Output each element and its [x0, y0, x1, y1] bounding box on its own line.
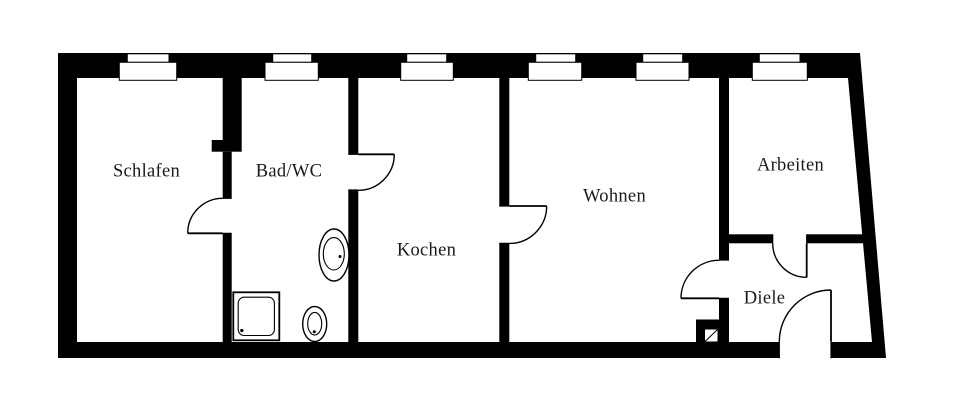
wall-kochen-wohnen-lower	[499, 243, 509, 342]
door-kochen-wohnen	[499, 206, 546, 243]
wall-schlafen-bad-notch	[212, 140, 224, 152]
chimney-flue	[696, 320, 729, 343]
shower-tray	[233, 292, 279, 340]
toilet	[303, 307, 327, 342]
room-label-bad-wc: Bad/WC	[256, 162, 323, 183]
wall-wohnen-diele-upper	[719, 77, 729, 260]
wall-bad-kochen-upper	[348, 77, 358, 154]
room-label-arbeiten: Arbeiten	[757, 155, 824, 176]
wall-schlafen-bad-upper	[223, 77, 242, 152]
room-label-schlafen: Schlafen	[113, 162, 180, 183]
bathroom-fixtures	[233, 229, 349, 342]
floor-plan-svg	[0, 0, 960, 416]
window-bad-wc	[265, 54, 318, 81]
door-schlafen	[188, 198, 232, 233]
window-wohnen-1	[528, 54, 581, 81]
window-kochen	[401, 54, 454, 81]
door-wohnen-diele	[681, 260, 729, 298]
entrance-opening	[779, 342, 831, 359]
door-bad-kochen	[348, 154, 394, 190]
toilet-drain	[313, 330, 316, 333]
building-shell	[58, 53, 886, 358]
door-diele-arbeiten	[773, 234, 807, 277]
window-wohnen-2	[636, 54, 689, 81]
wall-arbeiten-diele-right	[807, 234, 867, 243]
basin-tap	[339, 255, 342, 258]
wall-kochen-wohnen-upper	[499, 77, 509, 206]
wall-schlafen-bad-lower	[223, 233, 232, 342]
floor-plan: Schlafen Bad/WC Kochen Wohnen Arbeiten D…	[0, 0, 960, 416]
doors	[188, 154, 831, 358]
room-label-diele: Diele	[744, 289, 786, 310]
washbasin	[319, 229, 349, 281]
wall-bad-kochen-lower	[348, 190, 358, 343]
window-arbeiten	[752, 54, 807, 81]
window-schlafen	[119, 54, 176, 81]
wall-arbeiten-diele-left	[729, 234, 773, 243]
shower-drain	[240, 329, 243, 332]
room-label-wohnen: Wohnen	[583, 186, 646, 207]
wall-schlafen-bad-mid	[223, 152, 232, 199]
room-label-kochen: Kochen	[397, 240, 456, 261]
